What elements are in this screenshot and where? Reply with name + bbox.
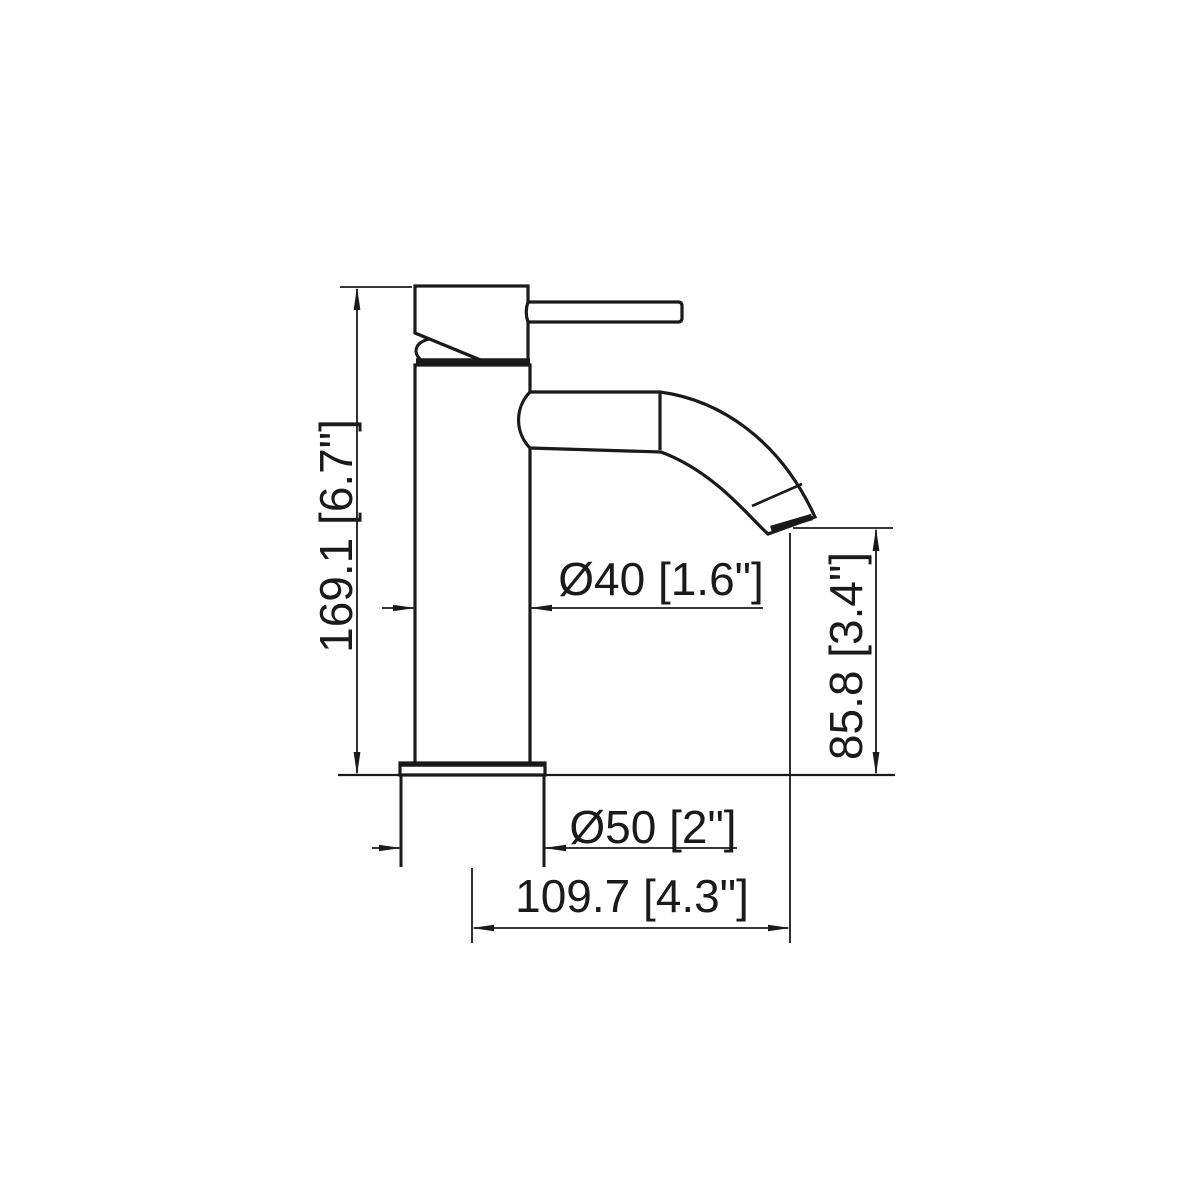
dim-outlet-height-label: 85.8 [3.4"] bbox=[820, 552, 872, 760]
dim-spout-reach-arrow-left bbox=[472, 925, 494, 931]
faucet-dimension-drawing: 169.1 [6.7"] Ø40 [1.6"] 85.8 [3.4"] Ø50 … bbox=[0, 0, 1200, 1200]
dim-total-height-arrow-up bbox=[354, 287, 361, 310]
under-counter-shank bbox=[401, 775, 544, 867]
faucet-handle-lever bbox=[526, 302, 682, 322]
dim-base-diameter: Ø50 [2"] bbox=[372, 801, 737, 853]
dim-spout-reach-arrow-right bbox=[768, 925, 790, 931]
faucet-handle-head bbox=[415, 286, 528, 361]
faucet-body-fill bbox=[415, 365, 530, 763]
dim-body-diameter-arrow-right bbox=[530, 605, 552, 611]
dim-base-diameter-arrow-right bbox=[544, 845, 566, 851]
dim-outlet-height-arrow-down bbox=[873, 752, 880, 775]
dim-total-height-arrow-down bbox=[354, 752, 361, 775]
dim-outlet-height-arrow-up bbox=[873, 528, 880, 551]
technical-drawing-page: 169.1 [6.7"] Ø40 [1.6"] 85.8 [3.4"] Ø50 … bbox=[0, 0, 1200, 1200]
dim-total-height: 169.1 [6.7"] bbox=[310, 287, 412, 775]
dim-body-diameter-label: Ø40 [1.6"] bbox=[558, 553, 764, 605]
dim-spout-reach-label: 109.7 [4.3"] bbox=[515, 870, 749, 922]
handle-pivot-arc bbox=[416, 339, 429, 360]
dim-total-height-label: 169.1 [6.7"] bbox=[310, 419, 362, 653]
faucet-spout bbox=[519, 392, 815, 534]
dim-base-diameter-arrow-left bbox=[379, 845, 401, 851]
dim-outlet-height: 85.8 [3.4"] bbox=[793, 528, 893, 775]
dim-base-diameter-label: Ø50 [2"] bbox=[569, 801, 736, 853]
dim-body-diameter-arrow-left bbox=[393, 605, 415, 611]
